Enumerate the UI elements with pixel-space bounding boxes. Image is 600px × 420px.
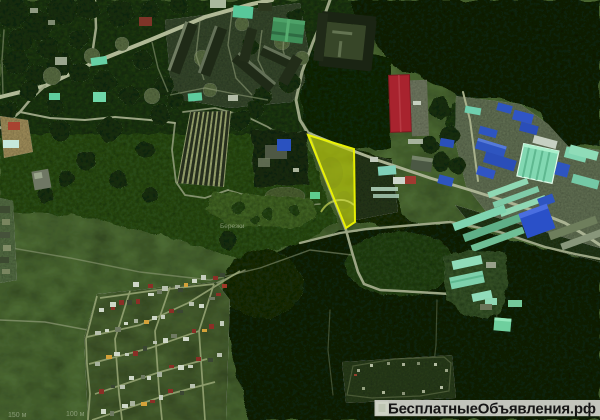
svg-text:100 м: 100 м [66,411,85,418]
svg-text:150 м: 150 м [8,412,27,419]
svg-text:БесплатныеОбъявления.рф: БесплатныеОбъявления.рф [388,401,596,418]
svg-text:Березки: Березки [220,223,245,230]
